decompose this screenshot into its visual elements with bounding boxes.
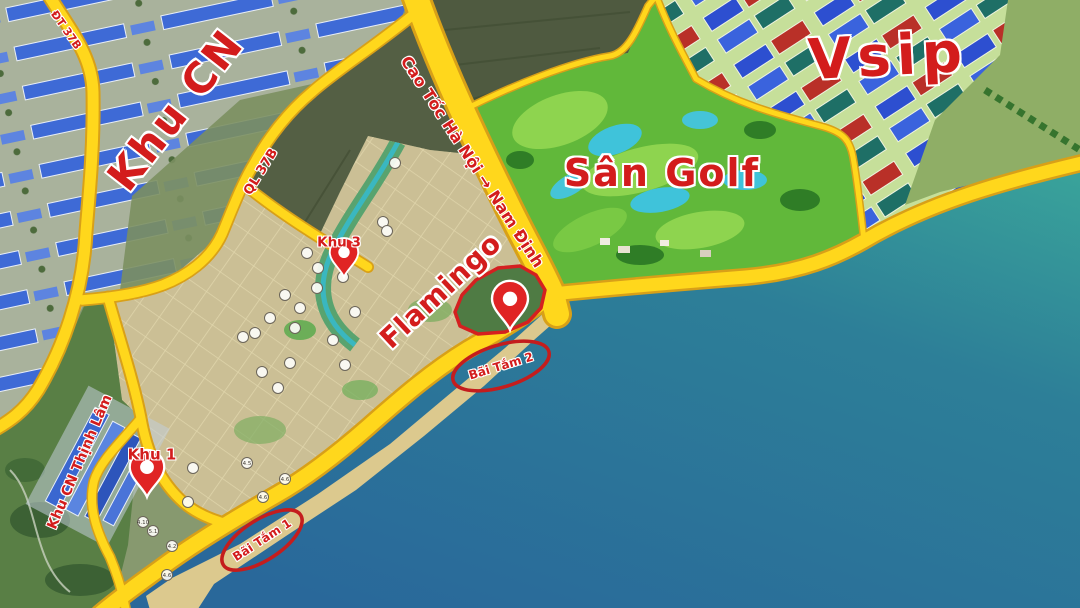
lot-marker[interactable] bbox=[188, 463, 199, 474]
lot-marker[interactable] bbox=[265, 313, 276, 324]
lot-marker[interactable] bbox=[238, 332, 249, 343]
lot-marker-label: 5.1 bbox=[149, 529, 158, 535]
lot-marker-label: 4.6 bbox=[259, 495, 268, 501]
lot-marker[interactable] bbox=[390, 158, 401, 169]
lot-marker[interactable] bbox=[312, 283, 323, 294]
lot-marker[interactable] bbox=[328, 335, 339, 346]
lot-marker[interactable] bbox=[295, 303, 306, 314]
lot-marker[interactable] bbox=[273, 383, 284, 394]
lot-marker-label: 4.6 bbox=[281, 477, 290, 483]
lot-marker[interactable] bbox=[257, 367, 268, 378]
lot-marker[interactable] bbox=[340, 360, 351, 371]
lot-marker-label: 4.6 bbox=[163, 573, 172, 579]
lot-marker[interactable] bbox=[285, 358, 296, 369]
lot-marker-label: 4.10 bbox=[137, 520, 150, 526]
region-label-vsip: Vsip bbox=[807, 25, 970, 89]
lot-marker[interactable] bbox=[183, 497, 194, 508]
lot-marker[interactable] bbox=[313, 263, 324, 274]
lot-marker[interactable] bbox=[290, 323, 301, 334]
point-label-khu-3: Khu 3 bbox=[317, 236, 361, 250]
lot-marker-label: 4.5 bbox=[243, 461, 252, 467]
lot-marker-label: 4.2 bbox=[168, 544, 177, 550]
point-label-khu-1: Khu 1 bbox=[128, 448, 177, 463]
lot-marker[interactable] bbox=[350, 307, 361, 318]
planning-map: 4.54.64.64.105.14.24.6 Khu CN Vsip Sân G… bbox=[0, 0, 1080, 608]
lot-marker[interactable] bbox=[302, 248, 313, 259]
lot-marker[interactable] bbox=[250, 328, 261, 339]
region-label-san-golf: Sân Golf bbox=[564, 154, 760, 192]
lot-marker[interactable] bbox=[382, 226, 393, 237]
lot-marker[interactable] bbox=[280, 290, 291, 301]
